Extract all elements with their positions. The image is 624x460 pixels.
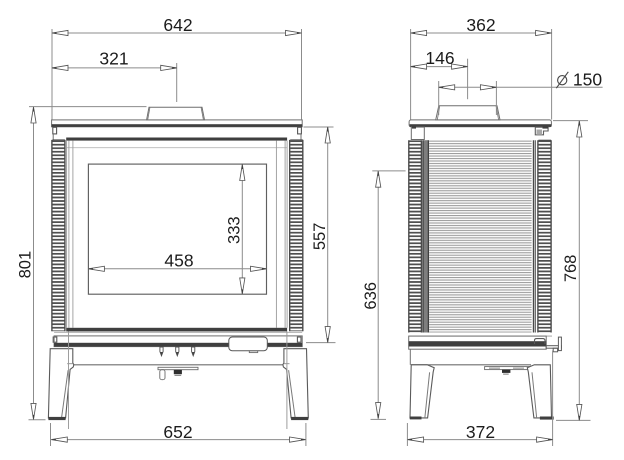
svg-text:146: 146 (425, 48, 454, 68)
svg-text:321: 321 (99, 49, 128, 69)
svg-text:801: 801 (17, 251, 35, 279)
svg-text:557: 557 (311, 223, 329, 251)
svg-text:333: 333 (226, 216, 244, 244)
svg-text:636: 636 (362, 282, 380, 310)
svg-text:458: 458 (164, 251, 193, 271)
svg-text:768: 768 (562, 255, 580, 283)
svg-text:642: 642 (163, 15, 192, 35)
svg-text:362: 362 (466, 15, 495, 35)
svg-text:150: 150 (573, 70, 602, 90)
svg-text:652: 652 (163, 422, 192, 442)
svg-text:372: 372 (466, 422, 495, 442)
